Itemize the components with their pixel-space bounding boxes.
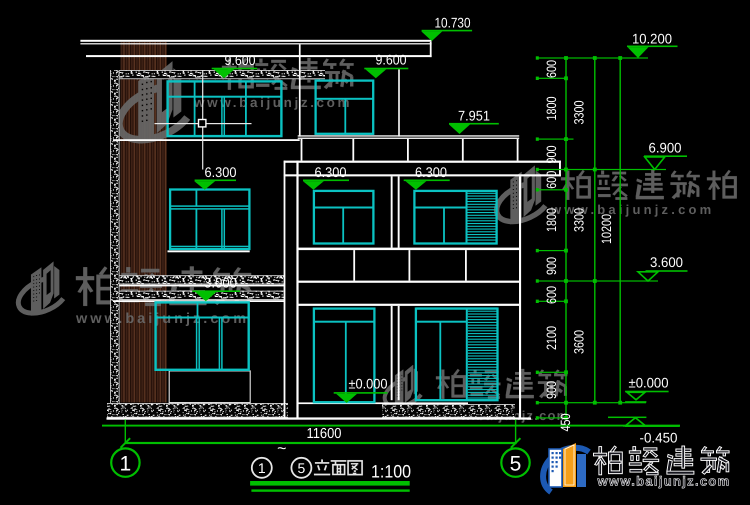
svg-text:450: 450	[558, 414, 573, 432]
svg-text:6.300: 6.300	[205, 164, 237, 180]
svg-text:6.300: 6.300	[415, 164, 447, 180]
svg-text:7.951: 7.951	[458, 108, 490, 124]
svg-text:900: 900	[544, 146, 559, 164]
svg-text:9.600: 9.600	[376, 52, 407, 68]
svg-text:±0.000: ±0.000	[349, 376, 388, 392]
svg-text:3300: 3300	[572, 101, 587, 125]
svg-text:900: 900	[544, 381, 559, 399]
svg-text:3300: 3300	[572, 208, 587, 232]
svg-text:9.600: 9.600	[225, 52, 256, 68]
svg-text:900: 900	[544, 257, 559, 275]
svg-text:600: 600	[544, 286, 559, 304]
svg-text:3.600: 3.600	[650, 254, 683, 270]
svg-text:6.300: 6.300	[315, 164, 347, 180]
svg-text:1: 1	[120, 452, 132, 475]
svg-text:±0.000: ±0.000	[629, 375, 669, 391]
svg-text:www.baijunjz.com: www.baijunjz.com	[75, 311, 249, 327]
svg-text:5: 5	[510, 452, 522, 475]
svg-text:10.730: 10.730	[435, 15, 471, 31]
svg-text:1: 1	[258, 460, 266, 476]
svg-text:600: 600	[544, 171, 559, 189]
svg-text:3600: 3600	[572, 330, 587, 354]
svg-text:11600: 11600	[307, 426, 342, 442]
svg-text:-0.450: -0.450	[640, 430, 678, 446]
svg-text:3.000: 3.000	[204, 275, 237, 291]
svg-text:1800: 1800	[544, 97, 559, 121]
svg-text:5: 5	[298, 460, 306, 476]
svg-text:1800: 1800	[544, 208, 559, 232]
svg-text:www.baijunjz.com: www.baijunjz.com	[597, 474, 731, 489]
svg-text:1:100: 1:100	[371, 462, 411, 482]
svg-text:10200: 10200	[599, 214, 614, 244]
svg-text:600: 600	[544, 60, 559, 78]
svg-text:10.200: 10.200	[632, 31, 672, 47]
svg-text:6.900: 6.900	[649, 140, 682, 156]
svg-text:2100: 2100	[544, 326, 559, 350]
svg-text:~: ~	[277, 441, 286, 458]
